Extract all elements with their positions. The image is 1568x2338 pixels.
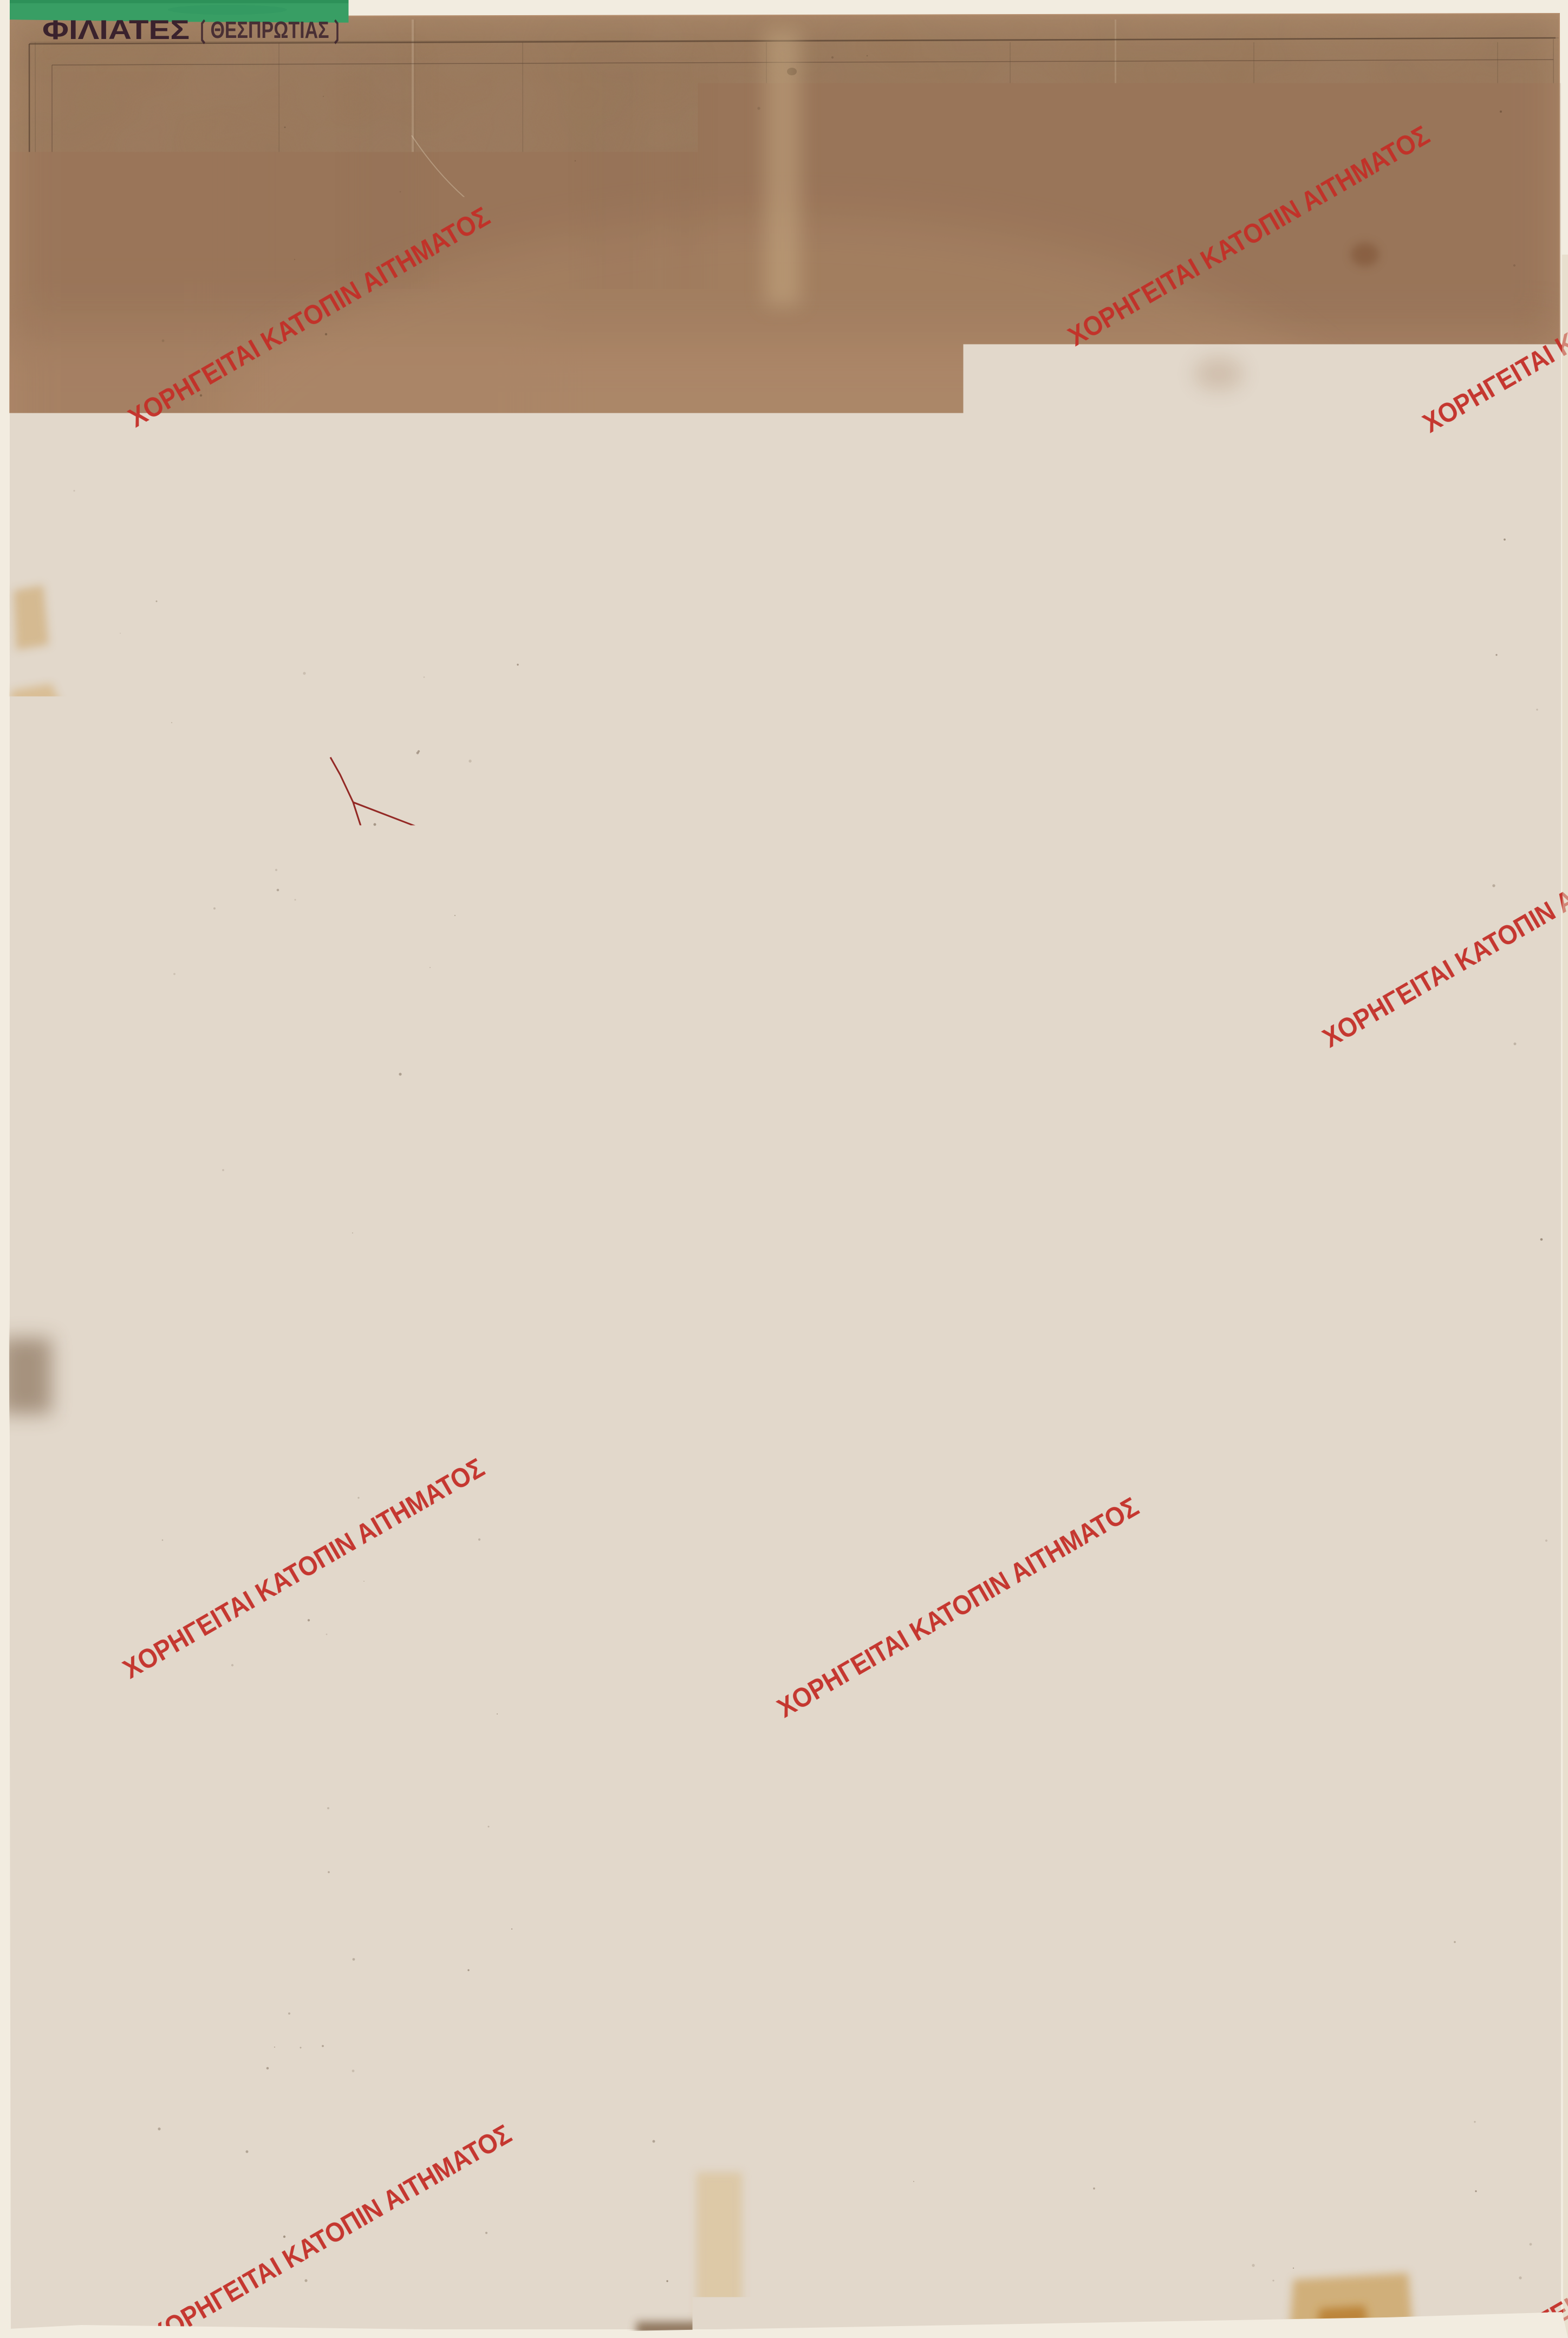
svg-text:5: 5	[1388, 1132, 1401, 1158]
svg-text:4: 4	[1441, 1250, 1454, 1275]
svg-text:4: 4	[732, 1235, 745, 1261]
svg-text:ΦΙΛΙΑΤΕΣ: ΦΙΛΙΑΤΕΣ	[42, 15, 190, 45]
svg-text:Δημοτική Αγορά: Δημοτική Αγορά	[1284, 1981, 1419, 2002]
svg-text:Σχολείον: Σχολείον	[1212, 1108, 1252, 1120]
svg-text:Τάφοι ’Οθωμανικοί: Τάφοι ’Οθωμανικοί	[607, 1371, 684, 1381]
svg-text:Σταθμός Α᾽υτοκινήτων: Σταθμός Α᾽υτοκινήτων	[1284, 2102, 1470, 2123]
svg-text:ΕΝΕΚΡΙΘΗ ΔΙΑ ΤΟΥ ΑΠΟ: ΕΝΕΚΡΙΘΗ ΔΙΑ ΤΟΥ ΑΠΟ	[1245, 317, 1350, 326]
svg-text:1:2000: 1:2000	[352, 15, 434, 43]
svg-text:Πλατεία: Πλατεία	[746, 1131, 808, 1144]
svg-text:ΦΥΛΛΟΝ ΤΟΥ Δ' ΤΕΥ-: ΦΥΛΛΟΝ ΤΟΥ Δ' ΤΕΥ-	[1436, 332, 1517, 341]
svg-text:Εκπαιδευτήρια: Εκπαιδευτήρια	[450, 1050, 517, 1062]
svg-text:ΔΗΜΟΣΙΕΥΘΕΝΤΟΣ ΕΙΣ ΤΟ ΥΠ' ΑΡΙΘ: ΔΗΜΟΣΙΕΥΘΕΝΤΟΣ ΕΙΣ ΤΟ ΥΠ' ΑΡΙΘ.	[1245, 332, 1404, 341]
svg-text:Κοίμησις Θεοτόκου: Κοίμησις Θεοτόκου	[1140, 1486, 1224, 1498]
svg-text:❲ΘΕΣΠΡΩΤΙΑΣ❳: ❲ΘΕΣΠΡΩΤΙΑΣ❳	[195, 17, 344, 44]
svg-text:ΣΥΓΚΟΙΝΩΝΙΩΝ ΚΑΙ ΔΗΜΟΣΙΩΝ ΕΡΓΩ: ΣΥΓΚΟΙΝΩΝΙΩΝ ΚΑΙ ΔΗΜΟΣΙΩΝ ΕΡΓΩΝ	[1213, 107, 1408, 116]
svg-text:ΣΥΝΟΔΕΥΕΙ ΤΟ Β.Δ/ΜΑ ΠΕΡΙ: ΣΥΝΟΔΕΥΕΙ ΤΟ Β.Δ/ΜΑ ΠΕΡΙ	[1203, 137, 1327, 146]
svg-text:Χούνη: Χούνη	[652, 1928, 682, 1939]
svg-text:τού ρυμοτομικού σχεδίου: τού ρυμοτομικού σχεδίου	[1198, 150, 1353, 166]
svg-text:1960 ΔΙΑΤΑΓΜΑΤΟΣ: 1960 ΔΙΑΤΑΓΜΑΤΟΣ	[1447, 317, 1521, 326]
svg-text:Γυμνάσιον: Γυμνάσιον	[1285, 2012, 1372, 2034]
svg-text:ʾΕξοχικόν κέντρον: ʾΕξοχικόν κέντρον	[1285, 2134, 1436, 2155]
svg-text:4 ʾΟκτωβρίου: 4 ʾΟκτωβρίου	[1354, 311, 1446, 328]
svg-text:3: 3	[1248, 2042, 1259, 2063]
svg-text:4: 4	[1248, 2071, 1259, 2093]
svg-text:2: 2	[1248, 2012, 1259, 2034]
svg-text:ΕΝ ΑΘΗΝΑΙΣ ΤΗ: ΕΝ ΑΘΗΝΑΙΣ ΤΗ	[1227, 181, 1303, 190]
svg-text:1: 1	[1248, 1981, 1259, 2002]
svg-text:ΧΟΥΣ ΤΗΣ ΕΦΗΜ. ΤΗΣ ΚΥΒΕΡΝΗΣΕΩΣ: ΧΟΥΣ ΤΗΣ ΕΦΗΜ. ΤΗΣ ΚΥΒΕΡΝΗΣΕΩΣ	[1245, 346, 1410, 355]
svg-text:B: B	[167, 2034, 176, 2050]
svg-text:Διοίκησις: Διοίκησις	[1284, 2042, 1361, 2063]
svg-text:Χούνη: Χούνη	[1175, 1542, 1200, 1551]
svg-text:3: 3	[590, 1149, 603, 1175]
svg-text:19 60: 19 60	[1445, 361, 1481, 377]
svg-text:Χούνη: Χούνη	[888, 1672, 913, 1681]
svg-text:Στέρνα: Στέρνα	[1321, 804, 1350, 815]
svg-text:Οικοτροφείον: Οικοτροφείον	[303, 891, 365, 902]
svg-text:2: 2	[699, 1156, 712, 1181]
svg-text:19 ʾΟκτωβρίου: 19 ʾΟκτωβρίου	[1320, 361, 1421, 378]
svg-text:5: 5	[1248, 2102, 1259, 2123]
svg-text:Τάφος: Τάφος	[498, 1148, 524, 1159]
svg-text:ΥΠΟΜΝΗΜΑ: ΥΠΟΜΝΗΜΑ	[1281, 1945, 1401, 1969]
svg-text:ΑΡΙΘ. ΠΡΑΞΕΩΣ: ΑΡΙΘ. ΠΡΑΞΕΩΣ	[1203, 125, 1279, 134]
svg-text:ʾΕκκλησία: ʾΕκκλησία	[1285, 2071, 1370, 2093]
svg-text:1: 1	[805, 1177, 818, 1202]
svg-text:Λουτρά: Λουτρά	[1408, 1378, 1443, 1389]
svg-text:Γυμναστήριον: Γυμναστήριον	[404, 935, 467, 946]
svg-text:144: 144	[1404, 327, 1429, 343]
svg-text:6: 6	[1248, 2134, 1259, 2155]
svg-text:ΤΗΣ: ΤΗΣ	[1299, 366, 1315, 375]
svg-text:ΥΠΟΥΡΓΕΙΟΝ: ΥΠΟΥΡΓΕΙΟΝ	[1274, 93, 1350, 103]
